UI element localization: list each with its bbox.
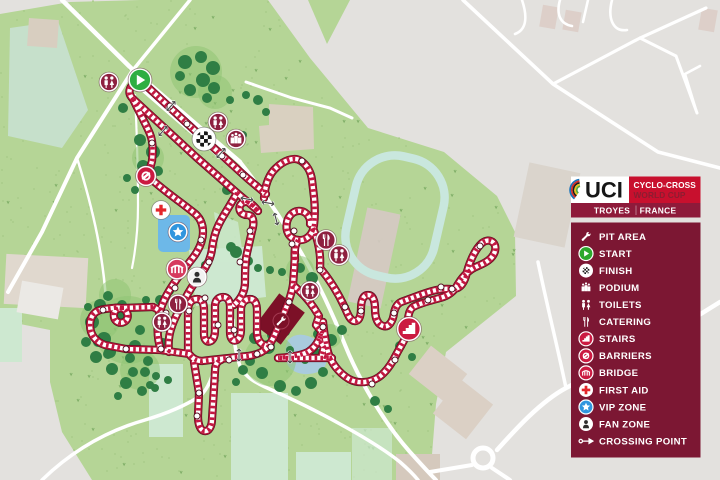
svg-text:FINISH: FINISH xyxy=(599,266,633,277)
svg-text:FRANCE: FRANCE xyxy=(640,205,677,215)
svg-text:TOILETS: TOILETS xyxy=(599,300,642,311)
svg-text:WORLD CUP: WORLD CUP xyxy=(634,190,686,200)
svg-text:BARRIERS: BARRIERS xyxy=(599,351,652,362)
svg-text:PODIUM: PODIUM xyxy=(599,283,639,294)
svg-text:FIRST AID: FIRST AID xyxy=(599,385,649,396)
svg-text:FAN ZONE: FAN ZONE xyxy=(599,419,651,430)
svg-text:UCI: UCI xyxy=(585,178,623,203)
svg-text:CYCLO-CROSS: CYCLO-CROSS xyxy=(634,180,697,190)
svg-text:CATERING: CATERING xyxy=(599,317,651,328)
svg-text:CROSSING POINT: CROSSING POINT xyxy=(599,436,687,447)
svg-text:PIT AREA: PIT AREA xyxy=(599,232,646,243)
svg-text:VIP ZONE: VIP ZONE xyxy=(599,402,647,413)
svg-text:STAIRS: STAIRS xyxy=(599,334,636,345)
svg-text:BRIDGE: BRIDGE xyxy=(599,368,639,379)
svg-text:START: START xyxy=(599,249,632,260)
svg-text:TROYES: TROYES xyxy=(594,205,630,215)
